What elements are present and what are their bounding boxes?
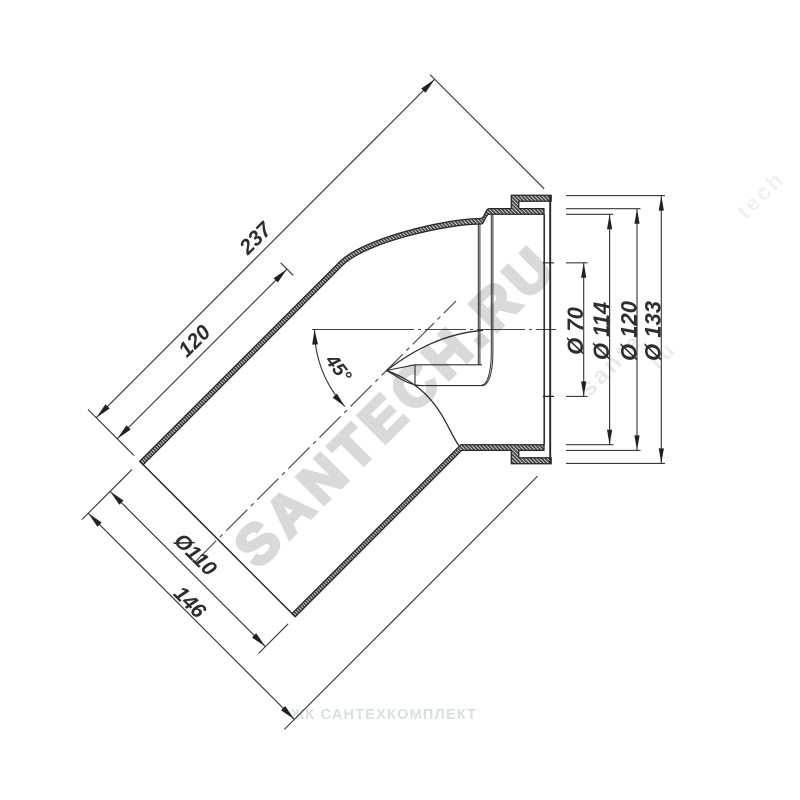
svg-text:SANTECH.RU: SANTECH.RU [222, 232, 569, 579]
svg-text:tech: tech [732, 166, 790, 224]
svg-text:Ø 120: Ø 120 [616, 300, 641, 361]
svg-text:Ø 70: Ø 70 [563, 306, 588, 354]
svg-text:120: 120 [174, 321, 215, 362]
svg-text:ЖК САНТЕХКОМПЛЕКТ: ЖК САНТЕХКОМПЛЕКТ [290, 707, 477, 723]
svg-text:237: 237 [235, 217, 278, 260]
svg-text:Ø110: Ø110 [169, 529, 221, 581]
svg-text:146: 146 [169, 582, 210, 623]
svg-text:Ø 114: Ø 114 [589, 302, 614, 360]
svg-text:45°: 45° [320, 350, 355, 387]
svg-text:Ø 133: Ø 133 [641, 301, 666, 361]
